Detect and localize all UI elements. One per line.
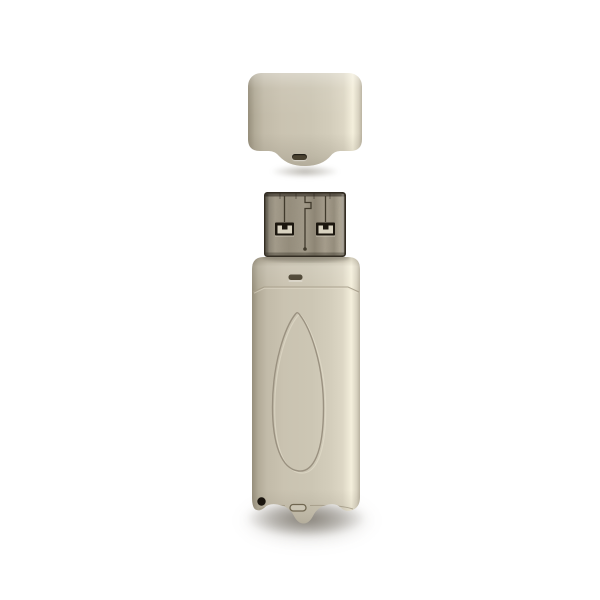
photo-canvas: Beige USB flash drive shown vertically o… (0, 0, 600, 600)
top-ridge-highlight (254, 288, 358, 293)
body-details (252, 257, 360, 527)
usb-body (252, 257, 360, 527)
led-hole (257, 497, 265, 505)
connector-bottom-shade (266, 253, 345, 256)
shoulder-shadow (262, 257, 350, 262)
connector-hole-left-rim (275, 236, 294, 237)
oval-emboss-line (273, 313, 324, 471)
usb-cap (248, 73, 362, 170)
bottom-slot (290, 505, 306, 512)
neck-slot-highlight (289, 280, 303, 281)
connector-right-highlight (342, 194, 345, 255)
cap-drop-shadow (270, 165, 340, 178)
connector-left-shade (266, 194, 269, 255)
cap-clip-slot (292, 154, 307, 160)
oval-emboss-highlight (275, 315, 326, 473)
connector-hole-right-rim (316, 236, 335, 237)
top-ridge-line (253, 287, 359, 292)
neck-slot (289, 275, 303, 281)
connector-trace-node (303, 247, 307, 251)
usb-a-connector (264, 192, 346, 257)
